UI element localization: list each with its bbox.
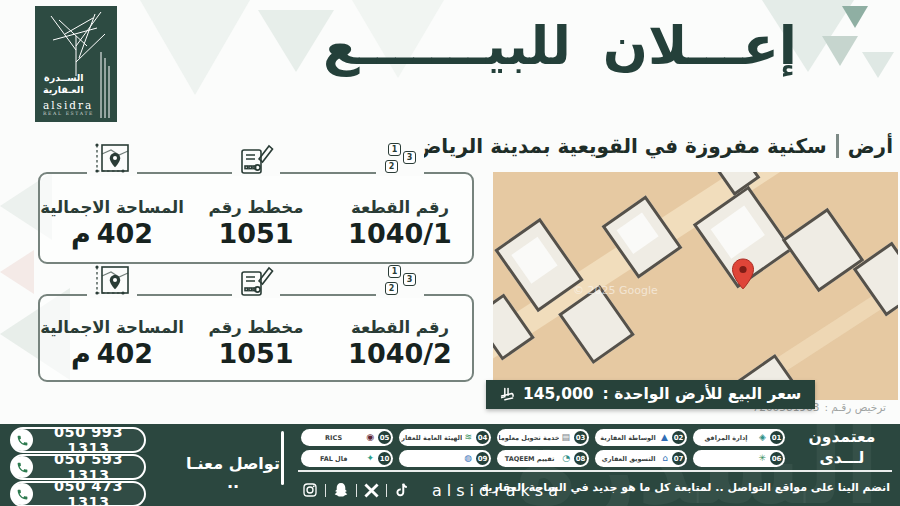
footer-bar: السدرة 050 993 1313 050 593 1313 050 473…: [0, 424, 900, 506]
square-2: 2: [385, 160, 398, 173]
plot-label: رقم القطعة: [351, 198, 449, 217]
plan-number-field: مخطط رقم 1051: [184, 174, 328, 262]
plan-document-icon: [232, 142, 280, 176]
square-3: 3: [403, 273, 416, 286]
rics-logo-icon: [366, 433, 374, 442]
footer-divider: [281, 431, 284, 485]
bg-triangle: [862, 52, 894, 78]
phone-button-1[interactable]: 050 993 1313: [10, 427, 146, 453]
numbered-squares-icon: 1 2 3: [376, 264, 424, 298]
area-unit: م: [71, 218, 91, 249]
tiktok-icon[interactable]: [394, 482, 409, 498]
subtitle-divider: [836, 134, 839, 158]
total-area-field: المساحة الاجمالية 402 م: [40, 174, 184, 262]
square-3: 3: [403, 151, 416, 164]
subtitle-text: سكنية مفروزة في القويعية بمدينة الرياض: [414, 134, 826, 158]
title-word-announcement: إعـــلان: [603, 16, 797, 77]
property-subtitle: أرض سكنية مفروزة في القويعية بمدينة الري…: [414, 134, 893, 158]
area-label: المساحة الاجمالية: [40, 198, 184, 217]
rega-logo-icon: [464, 433, 472, 442]
satellite-map: © 2025 Google: [493, 172, 898, 400]
diamond-logo-icon: [759, 433, 766, 442]
phone-button-2[interactable]: 050 593 1313: [10, 454, 146, 480]
plot-card-2: 1 2 3 رقم القطعة 1040/2: [38, 294, 474, 382]
square-1: 1: [388, 265, 401, 278]
plan-value: 1051: [218, 338, 293, 369]
plot-value: 1040/2: [348, 338, 452, 369]
area-value: 402: [97, 338, 153, 369]
price-bar: سعر البيع للأرض الواحدة : 145,000: [486, 380, 815, 409]
bg-triangle: [140, 0, 250, 95]
phone-button-3[interactable]: 050 473 1313: [10, 481, 146, 506]
circle-logo-icon: [464, 454, 472, 463]
phone-icon: [11, 456, 33, 478]
accreditation-badge-03: 03 خدمة تحويل معلومات سكني: [497, 429, 589, 446]
map-watermark: © 2025 Google: [573, 284, 658, 297]
plot-card-1: 1 2 3 رقم القطعة 1040/1: [38, 172, 474, 264]
area-map-pin-icon: [87, 142, 137, 176]
license-label: ترخيص رقـم :: [824, 401, 886, 413]
accredited-by-label: معتمدون لـــدى: [792, 427, 892, 469]
title-word-forsale: للبيـــــــع: [323, 16, 571, 77]
square-2: 2: [385, 282, 398, 295]
total-area-field: المساحة الاجمالية 402 م: [40, 296, 184, 380]
plot-value: 1040/1: [348, 218, 452, 249]
document-logo-icon: [561, 433, 570, 442]
accreditation-badge-09: 09: [399, 450, 491, 467]
accreditation-badge-02: 02 الوساطة العقارية: [595, 429, 687, 446]
square-1: 1: [388, 143, 401, 156]
saudi-riyal-icon: [500, 387, 514, 402]
location-pin-icon: [731, 258, 755, 290]
snapchat-icon[interactable]: [333, 482, 349, 498]
chevron-logo-icon: [661, 433, 668, 442]
plan-label: مخطط رقم: [209, 198, 304, 217]
icon-separator: [325, 484, 326, 497]
real-estate-flyer: الســدرة العـقارية alsidra REAL ESTATE إ…: [0, 0, 900, 506]
accreditation-badge-05: 05 RICS: [301, 429, 393, 446]
phone-icon: [11, 483, 33, 505]
brand-logo: الســدرة العـقارية alsidra REAL ESTATE: [35, 6, 117, 122]
instagram-icon[interactable]: [302, 482, 318, 498]
contact-us-label: تواصل معنـا ..: [183, 454, 283, 492]
area-map-pin-icon: [87, 264, 137, 298]
price-label: سعر البيع للأرض الواحدة :: [603, 385, 802, 403]
numbered-squares-icon: 1 2 3: [376, 142, 424, 176]
accreditation-badge-06: 06: [693, 450, 785, 467]
x-icon[interactable]: [364, 483, 379, 498]
icon-separator: [356, 484, 357, 497]
bg-triangle: [822, 36, 858, 66]
fal-logo-icon: [366, 454, 374, 463]
plan-document-icon: [232, 264, 280, 298]
brand-name-arabic: الســدرة العـقارية: [43, 72, 84, 96]
area-label: المساحة الاجمالية: [40, 318, 184, 337]
palm-logo-icon: [758, 454, 766, 463]
area-unit: م: [71, 338, 91, 369]
accreditation-badge-08: 08 تقييم TAQEEM: [497, 450, 589, 467]
building: [782, 208, 865, 293]
accreditation-badge-10: 10 فال FAL: [301, 450, 393, 467]
icon-separator: [386, 484, 387, 497]
price-value: 145,000: [523, 385, 594, 403]
building-logo-icon: [662, 454, 668, 463]
phone-icon: [11, 429, 33, 451]
bg-triangle: [842, 6, 868, 28]
plan-value: 1051: [218, 218, 293, 249]
plan-label: مخطط رقم: [209, 318, 304, 337]
accreditation-badge-01: 01 إدارة المرافق: [693, 429, 785, 446]
social-note: انضم الينا على مواقع التواصل .. لمتابعة …: [482, 481, 890, 494]
accreditation-badge-04: 04 الهيئة العامة للعقار: [399, 429, 491, 446]
plot-number-field: 1 2 3 رقم القطعة 1040/1: [328, 174, 472, 262]
plan-number-field: مخطط رقم 1051: [184, 296, 328, 380]
plot-label: رقم القطعة: [351, 318, 449, 337]
area-value: 402: [97, 218, 153, 249]
poster-title: إعـــلان للبيـــــــع: [360, 16, 760, 77]
plot-number-field: 1 2 3 رقم القطعة 1040/2: [328, 296, 472, 380]
accreditation-badge-07: 07 التسويق العقاري: [595, 450, 687, 467]
accreditation-badges: 05 RICS 04 الهيئة العامة للعقار 03 خدمة …: [298, 427, 792, 469]
phone-number: 050 473 1313: [33, 478, 144, 506]
brand-name-english: alsidra: [43, 99, 93, 111]
subtitle-prefix: أرض: [848, 134, 893, 158]
footer-horizontal-divider: [298, 470, 892, 472]
taqeem-logo-icon: [562, 454, 570, 463]
brand-tagline: REAL ESTATE: [43, 111, 94, 116]
